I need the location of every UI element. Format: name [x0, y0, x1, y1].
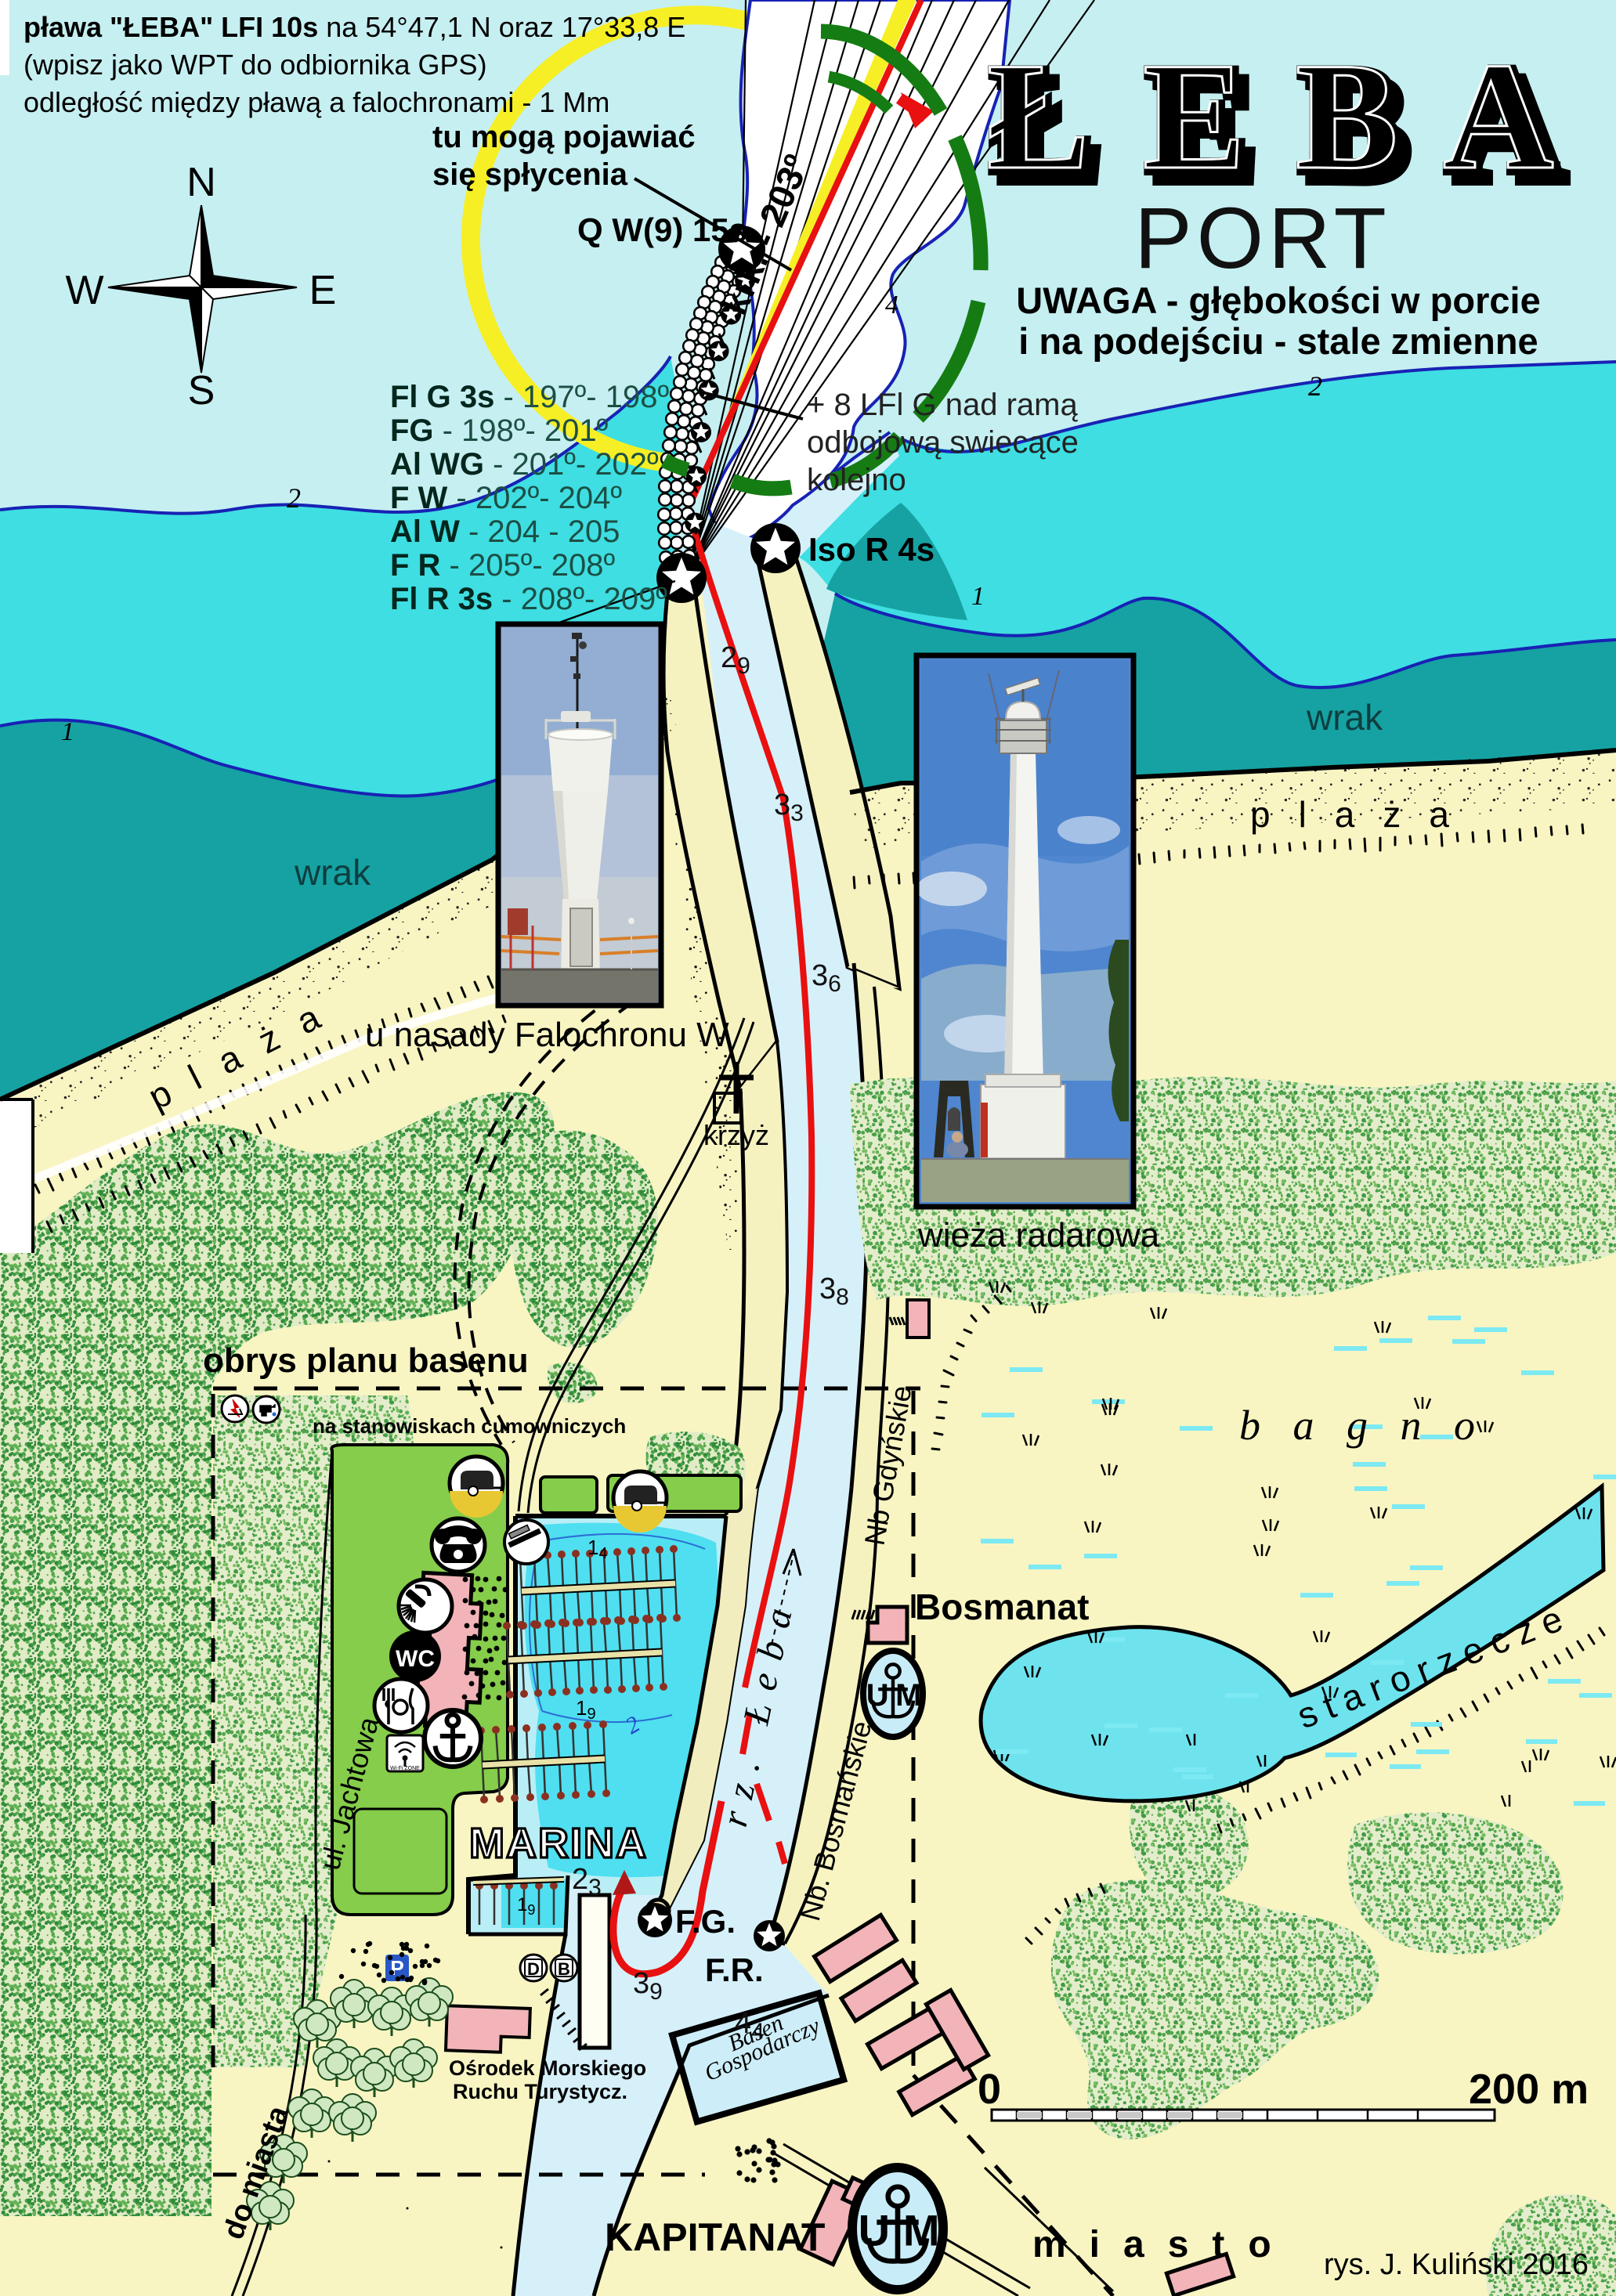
svg-text:i na podejściu - stale zmienne: i na podejściu - stale zmienne: [1018, 320, 1538, 362]
svg-text:wieża radarowa: wieża radarowa: [917, 1216, 1160, 1254]
svg-text:MARINA: MARINA: [469, 1820, 648, 1867]
svg-text:M: M: [903, 2205, 940, 2254]
svg-text:D: D: [527, 1959, 540, 1979]
svg-text:Fl G 3s - 197º- 198º: Fl G 3s - 197º- 198º: [390, 380, 669, 414]
svg-text:FG - 198º- 201º: FG - 198º- 201º: [390, 413, 609, 448]
svg-text:PORT: PORT: [1134, 190, 1391, 287]
svg-text:Fl R 3s - 208º- 209º: Fl R 3s - 208º- 209º: [390, 582, 667, 616]
svg-text:Bosmanat: Bosmanat: [915, 1587, 1089, 1627]
svg-text:u nasady Falochronu W: u nasady Falochronu W: [365, 1016, 729, 1054]
svg-text:plaża: plaża: [1250, 794, 1477, 835]
svg-text:E: E: [1143, 31, 1245, 201]
svg-text:Ośrodek Morskiego: Ośrodek Morskiego: [449, 2056, 646, 2080]
svg-text:wrak: wrak: [1306, 697, 1383, 738]
svg-text:F.G.: F.G.: [675, 1903, 736, 1940]
svg-text:rys. J. Kuliński 2016: rys. J. Kuliński 2016: [1324, 2248, 1589, 2281]
svg-text:Wi-Fi ZONE: Wi-Fi ZONE: [390, 1766, 420, 1771]
svg-text:tu mogą pojawiać: tu mogą pojawiać: [432, 120, 696, 154]
svg-text:2: 2: [1308, 370, 1322, 402]
svg-text:się spłycenia: się spłycenia: [432, 157, 628, 192]
svg-text:2: 2: [287, 482, 301, 514]
svg-text:Al WG - 201º- 202º: Al WG - 201º- 202º: [390, 447, 659, 482]
svg-text:obrys planu basenu: obrys planu basenu: [203, 1341, 529, 1380]
svg-text:odległość między pławą a faloc: odległość między pławą a falochronami - …: [23, 86, 609, 118]
svg-text:S: S: [188, 368, 215, 413]
svg-text:odbojową swiecące: odbojową swiecące: [807, 425, 1079, 460]
svg-text:1: 1: [971, 582, 985, 611]
svg-text:Ł: Ł: [987, 31, 1090, 201]
svg-text:F.R.: F.R.: [705, 1951, 764, 1988]
svg-text:Q W(9) 15s: Q W(9) 15s: [577, 211, 747, 248]
svg-text:+ 8 LFl G nad ramą: + 8 LFl G nad ramą: [807, 388, 1078, 422]
svg-text:(wpisz jako WPT do odbiornika: (wpisz jako WPT do odbiornika GPS): [23, 49, 487, 81]
svg-text:Al W - 204 - 205: Al W - 204 - 205: [390, 514, 620, 549]
svg-text:krzyż: krzyż: [703, 1119, 769, 1151]
svg-text:kolejno: kolejno: [807, 463, 906, 497]
svg-text:M: M: [895, 1678, 921, 1713]
svg-text:pława "ŁEBA" LFI 10s na 54°47,: pława "ŁEBA" LFI 10s na 54°47,1 N oraz 1…: [23, 11, 685, 43]
svg-text:Ruchu Turystycz.: Ruchu Turystycz.: [453, 2080, 627, 2103]
svg-text:F W - 202º- 204º: F W - 202º- 204º: [390, 481, 622, 515]
svg-text:U: U: [866, 1678, 889, 1713]
svg-text:E: E: [309, 268, 337, 313]
svg-text:B: B: [558, 1959, 570, 1979]
svg-text:F R - 205º- 208º: F R - 205º- 208º: [390, 548, 616, 583]
svg-text:Iso R 4s: Iso R 4s: [808, 531, 935, 568]
svg-text:wrak: wrak: [294, 852, 371, 893]
svg-text:b a g n o: b a g n o: [1239, 1402, 1486, 1449]
svg-text:na stanowiskach cumowniczych: na stanowiskach cumowniczych: [313, 1414, 626, 1438]
svg-text:UWAGA - głębokości w porcie: UWAGA - głębokości w porcie: [1016, 280, 1540, 321]
svg-text:WC: WC: [396, 1646, 435, 1672]
svg-text:A: A: [1443, 31, 1554, 201]
svg-text:U: U: [859, 2205, 890, 2254]
svg-text:W: W: [65, 268, 103, 313]
svg-text:1: 1: [61, 717, 74, 746]
svg-text:N: N: [186, 160, 216, 205]
svg-text:KAPITANAT: KAPITANAT: [605, 2215, 825, 2259]
svg-text:miasto: miasto: [1032, 2224, 1295, 2265]
svg-text:4: 4: [885, 291, 898, 319]
svg-text:B: B: [1296, 31, 1398, 201]
svg-text:200 m: 200 m: [1469, 2066, 1589, 2113]
svg-text:0: 0: [978, 2066, 1001, 2113]
